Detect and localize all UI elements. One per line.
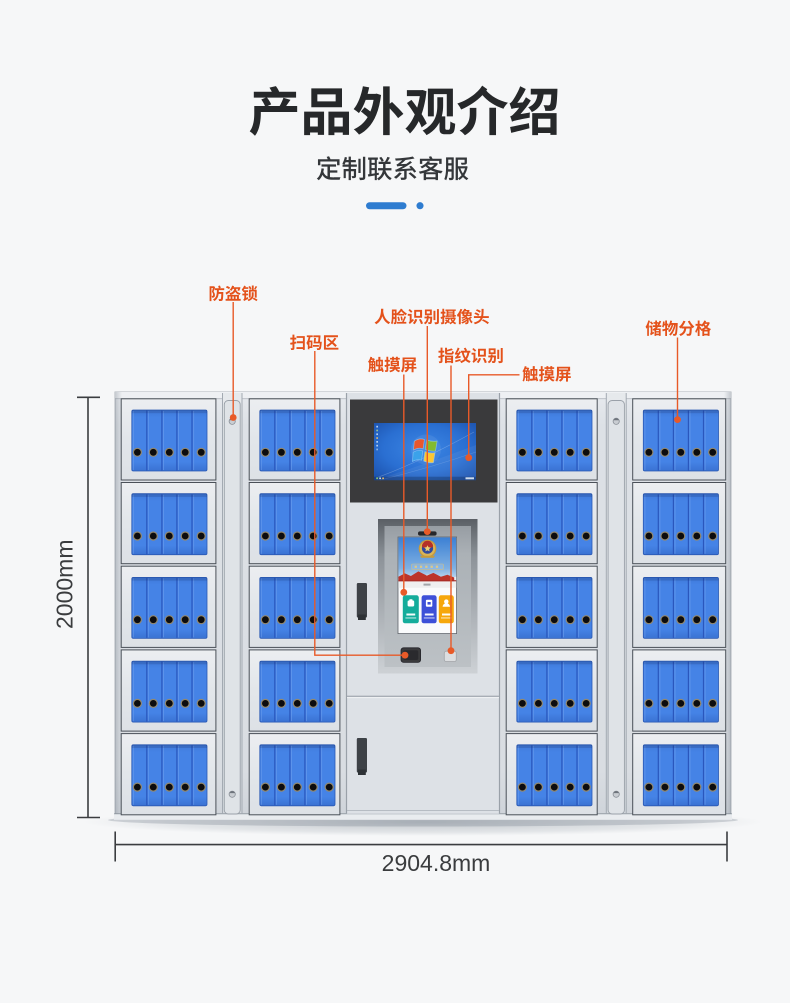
svg-text:2904.8mm: 2904.8mm	[382, 850, 491, 876]
svg-text:2000mm: 2000mm	[52, 540, 78, 629]
